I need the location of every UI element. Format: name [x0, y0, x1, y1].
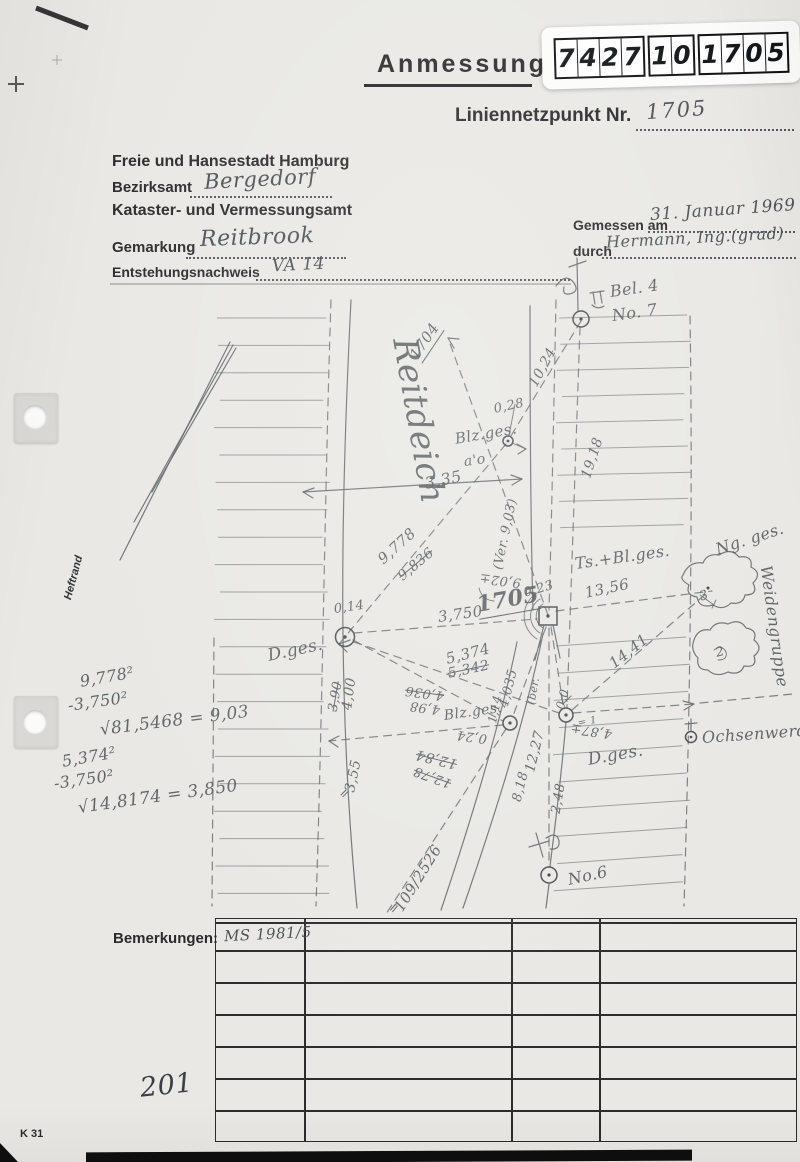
table-row-line: [216, 1014, 796, 1016]
entstehung-value: VA 14: [272, 254, 326, 277]
gemarkung-value: Reitbrook: [200, 223, 315, 252]
stamp-digit: 7: [721, 34, 744, 72]
point-number-value: 1705: [645, 96, 708, 124]
gemarkung-label: Gemarkung: [112, 239, 195, 256]
durch-line: [602, 257, 796, 259]
stamp-digit: 4: [577, 39, 600, 77]
bemerkungen-table: [215, 918, 797, 1142]
bemerkungen-label: Bemerkungen:: [113, 930, 218, 947]
stamp-digit: 7: [621, 37, 643, 75]
stamp-digit-group: 1705: [697, 31, 789, 75]
field-hatching-left: [214, 318, 330, 893]
station-symbol-no6: [529, 833, 559, 883]
entstehung-label: Entstehungsnachweis: [112, 264, 260, 280]
label-a-o: a'o: [463, 451, 487, 470]
table-column-line: [304, 919, 306, 1141]
north-fan-lines: [120, 342, 236, 560]
point-symbol-blz-lower: [503, 716, 517, 730]
stamp-digit-group: 7427: [553, 35, 645, 79]
table-row-line: [216, 1046, 796, 1048]
point-number-stamp: 7427101705: [541, 20, 800, 89]
scan-artifacts: [8, 8, 88, 92]
stamp-digit: 0: [743, 34, 766, 72]
point-number-line: [636, 129, 794, 131]
stamp-digit: 1: [649, 36, 672, 74]
stamp-digit-group: 10: [647, 34, 695, 76]
field-hatching-right-upper: [556, 315, 691, 528]
office-line: Kataster- und Vermessungsamt: [112, 202, 352, 220]
stamp-digit-grid: 7427101705: [553, 31, 789, 79]
stamp-digit: 5: [765, 33, 787, 71]
scanned-form-page: Reitdeich170410,240,28Blz.ges.a'o19,183,…: [0, 0, 800, 1162]
table-row-line: [216, 982, 796, 984]
punch-hole-tab-upper: [14, 393, 58, 443]
table-column-line: [599, 919, 601, 1141]
entstehung-line: [256, 279, 570, 281]
stamp-digit: 1: [699, 35, 722, 73]
page-number: 201: [139, 1067, 195, 1103]
ochsenwerder-symbol: [685, 719, 697, 743]
point-number-label: Liniennetzpunkt Nr.: [455, 105, 631, 127]
stamp-digit: 2: [599, 38, 622, 76]
punch-hole-lower: [23, 710, 47, 734]
point-symbol-d-ges: [336, 628, 355, 647]
table-row-line: [216, 1110, 796, 1112]
bezirksamt-line: [190, 196, 332, 198]
punch-hole-upper: [23, 405, 47, 429]
form-title: Anmessung: [377, 50, 547, 79]
table-column-line: [511, 919, 513, 1141]
title-underline: [364, 84, 532, 87]
bezirksamt-label: Bezirksamt: [112, 179, 192, 196]
scan-edge-strip: [86, 1150, 692, 1162]
punch-hole-tab-lower: [14, 696, 58, 748]
form-code: K 31: [20, 1128, 43, 1140]
table-row-line: [216, 1078, 796, 1080]
table-row-line: [216, 950, 796, 952]
stamp-digit: 7: [555, 39, 578, 77]
stamp-digit: 0: [671, 36, 693, 74]
